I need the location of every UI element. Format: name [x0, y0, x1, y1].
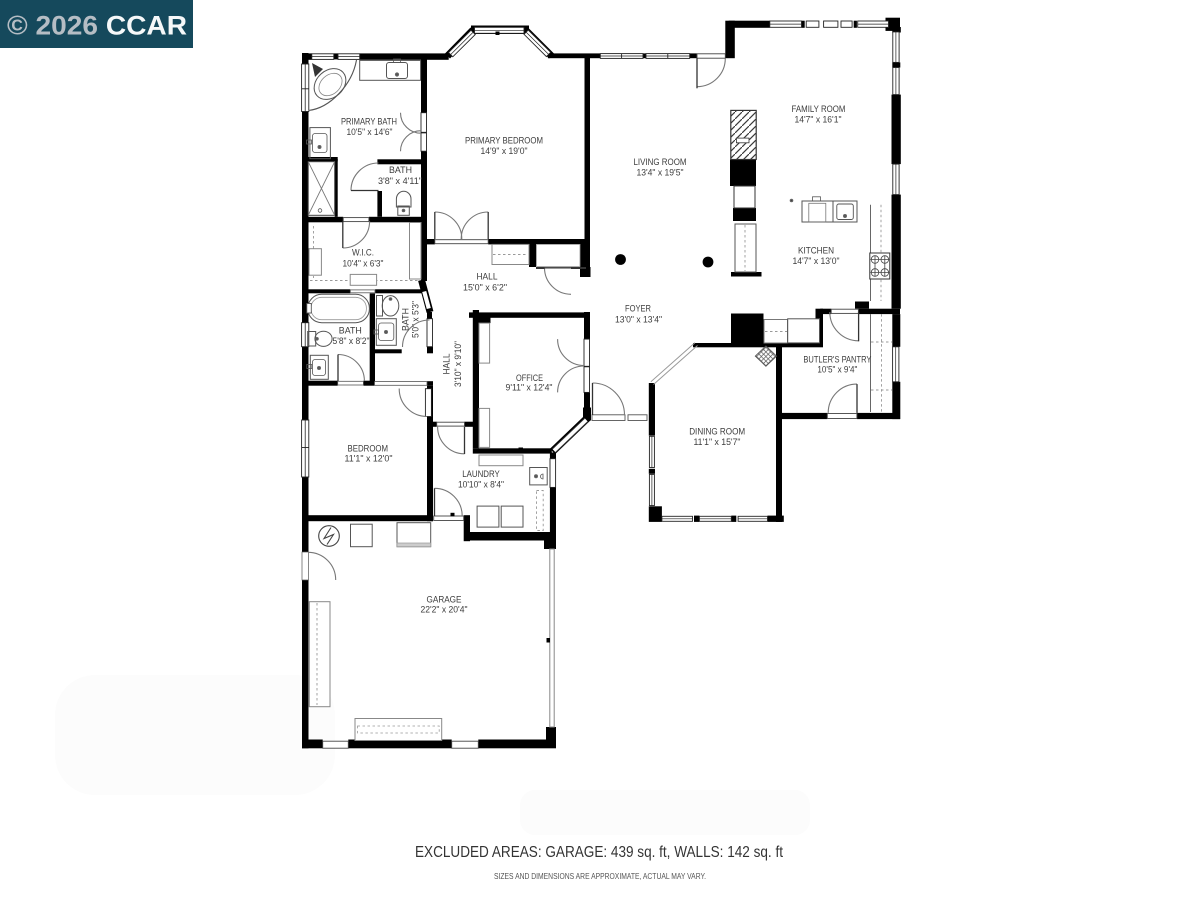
- svg-text:BATH: BATH: [389, 165, 412, 176]
- svg-text:5'0" x 5'3": 5'0" x 5'3": [411, 301, 421, 338]
- svg-text:W.I.C.: W.I.C.: [352, 247, 374, 258]
- svg-text:13'0" x 13'4": 13'0" x 13'4": [615, 314, 662, 324]
- svg-text:11'1" x 15'7": 11'1" x 15'7": [694, 437, 741, 447]
- svg-text:SIZES AND DIMENSIONS ARE APPRO: SIZES AND DIMENSIONS ARE APPROXIMATE, AC…: [494, 872, 706, 881]
- svg-text:PRIMARY BATH: PRIMARY BATH: [341, 116, 397, 127]
- svg-text:KITCHEN: KITCHEN: [798, 245, 834, 256]
- svg-text:BATH: BATH: [400, 308, 411, 331]
- svg-text:13'4" x 19'5": 13'4" x 19'5": [637, 168, 684, 178]
- svg-text:FOYER: FOYER: [625, 303, 651, 314]
- svg-text:BATH: BATH: [339, 326, 362, 337]
- svg-text:PRIMARY BEDROOM: PRIMARY BEDROOM: [465, 135, 543, 146]
- svg-text:10'10" x 8'4": 10'10" x 8'4": [458, 479, 504, 489]
- svg-text:10'4" x 6'3": 10'4" x 6'3": [343, 258, 384, 268]
- svg-text:15'0" x 6'2": 15'0" x 6'2": [463, 282, 507, 292]
- svg-text:10'5" x 14'6": 10'5" x 14'6": [347, 127, 393, 137]
- svg-text:14'7" x 16'1": 14'7" x 16'1": [795, 114, 842, 124]
- svg-text:© 2026 CCAR: © 2026 CCAR: [7, 11, 187, 41]
- svg-text:10'5" x 9'4": 10'5" x 9'4": [817, 365, 857, 375]
- svg-text:LIVING ROOM: LIVING ROOM: [634, 157, 687, 168]
- svg-text:9'11" x 12'4": 9'11" x 12'4": [506, 383, 553, 393]
- svg-text:EXCLUDED AREAS: GARAGE: 439 sq: EXCLUDED AREAS: GARAGE: 439 sq. ft, WALL…: [415, 844, 784, 861]
- svg-text:14'9" x 19'0": 14'9" x 19'0": [481, 146, 528, 156]
- svg-text:22'2" x 20'4": 22'2" x 20'4": [421, 604, 468, 614]
- svg-text:FAMILY ROOM: FAMILY ROOM: [792, 104, 846, 115]
- svg-text:HALL: HALL: [477, 271, 498, 282]
- svg-text:3'8" x 4'11": 3'8" x 4'11": [378, 176, 422, 186]
- svg-text:14'7" x 13'0": 14'7" x 13'0": [793, 256, 840, 266]
- svg-text:HALL: HALL: [441, 354, 452, 375]
- svg-text:11'1" x 12'0": 11'1" x 12'0": [345, 453, 393, 463]
- svg-text:5'8" x 8'2": 5'8" x 8'2": [333, 336, 370, 346]
- svg-text:LAUNDRY: LAUNDRY: [462, 469, 500, 480]
- svg-text:3'10" x 9'10": 3'10" x 9'10": [453, 341, 463, 387]
